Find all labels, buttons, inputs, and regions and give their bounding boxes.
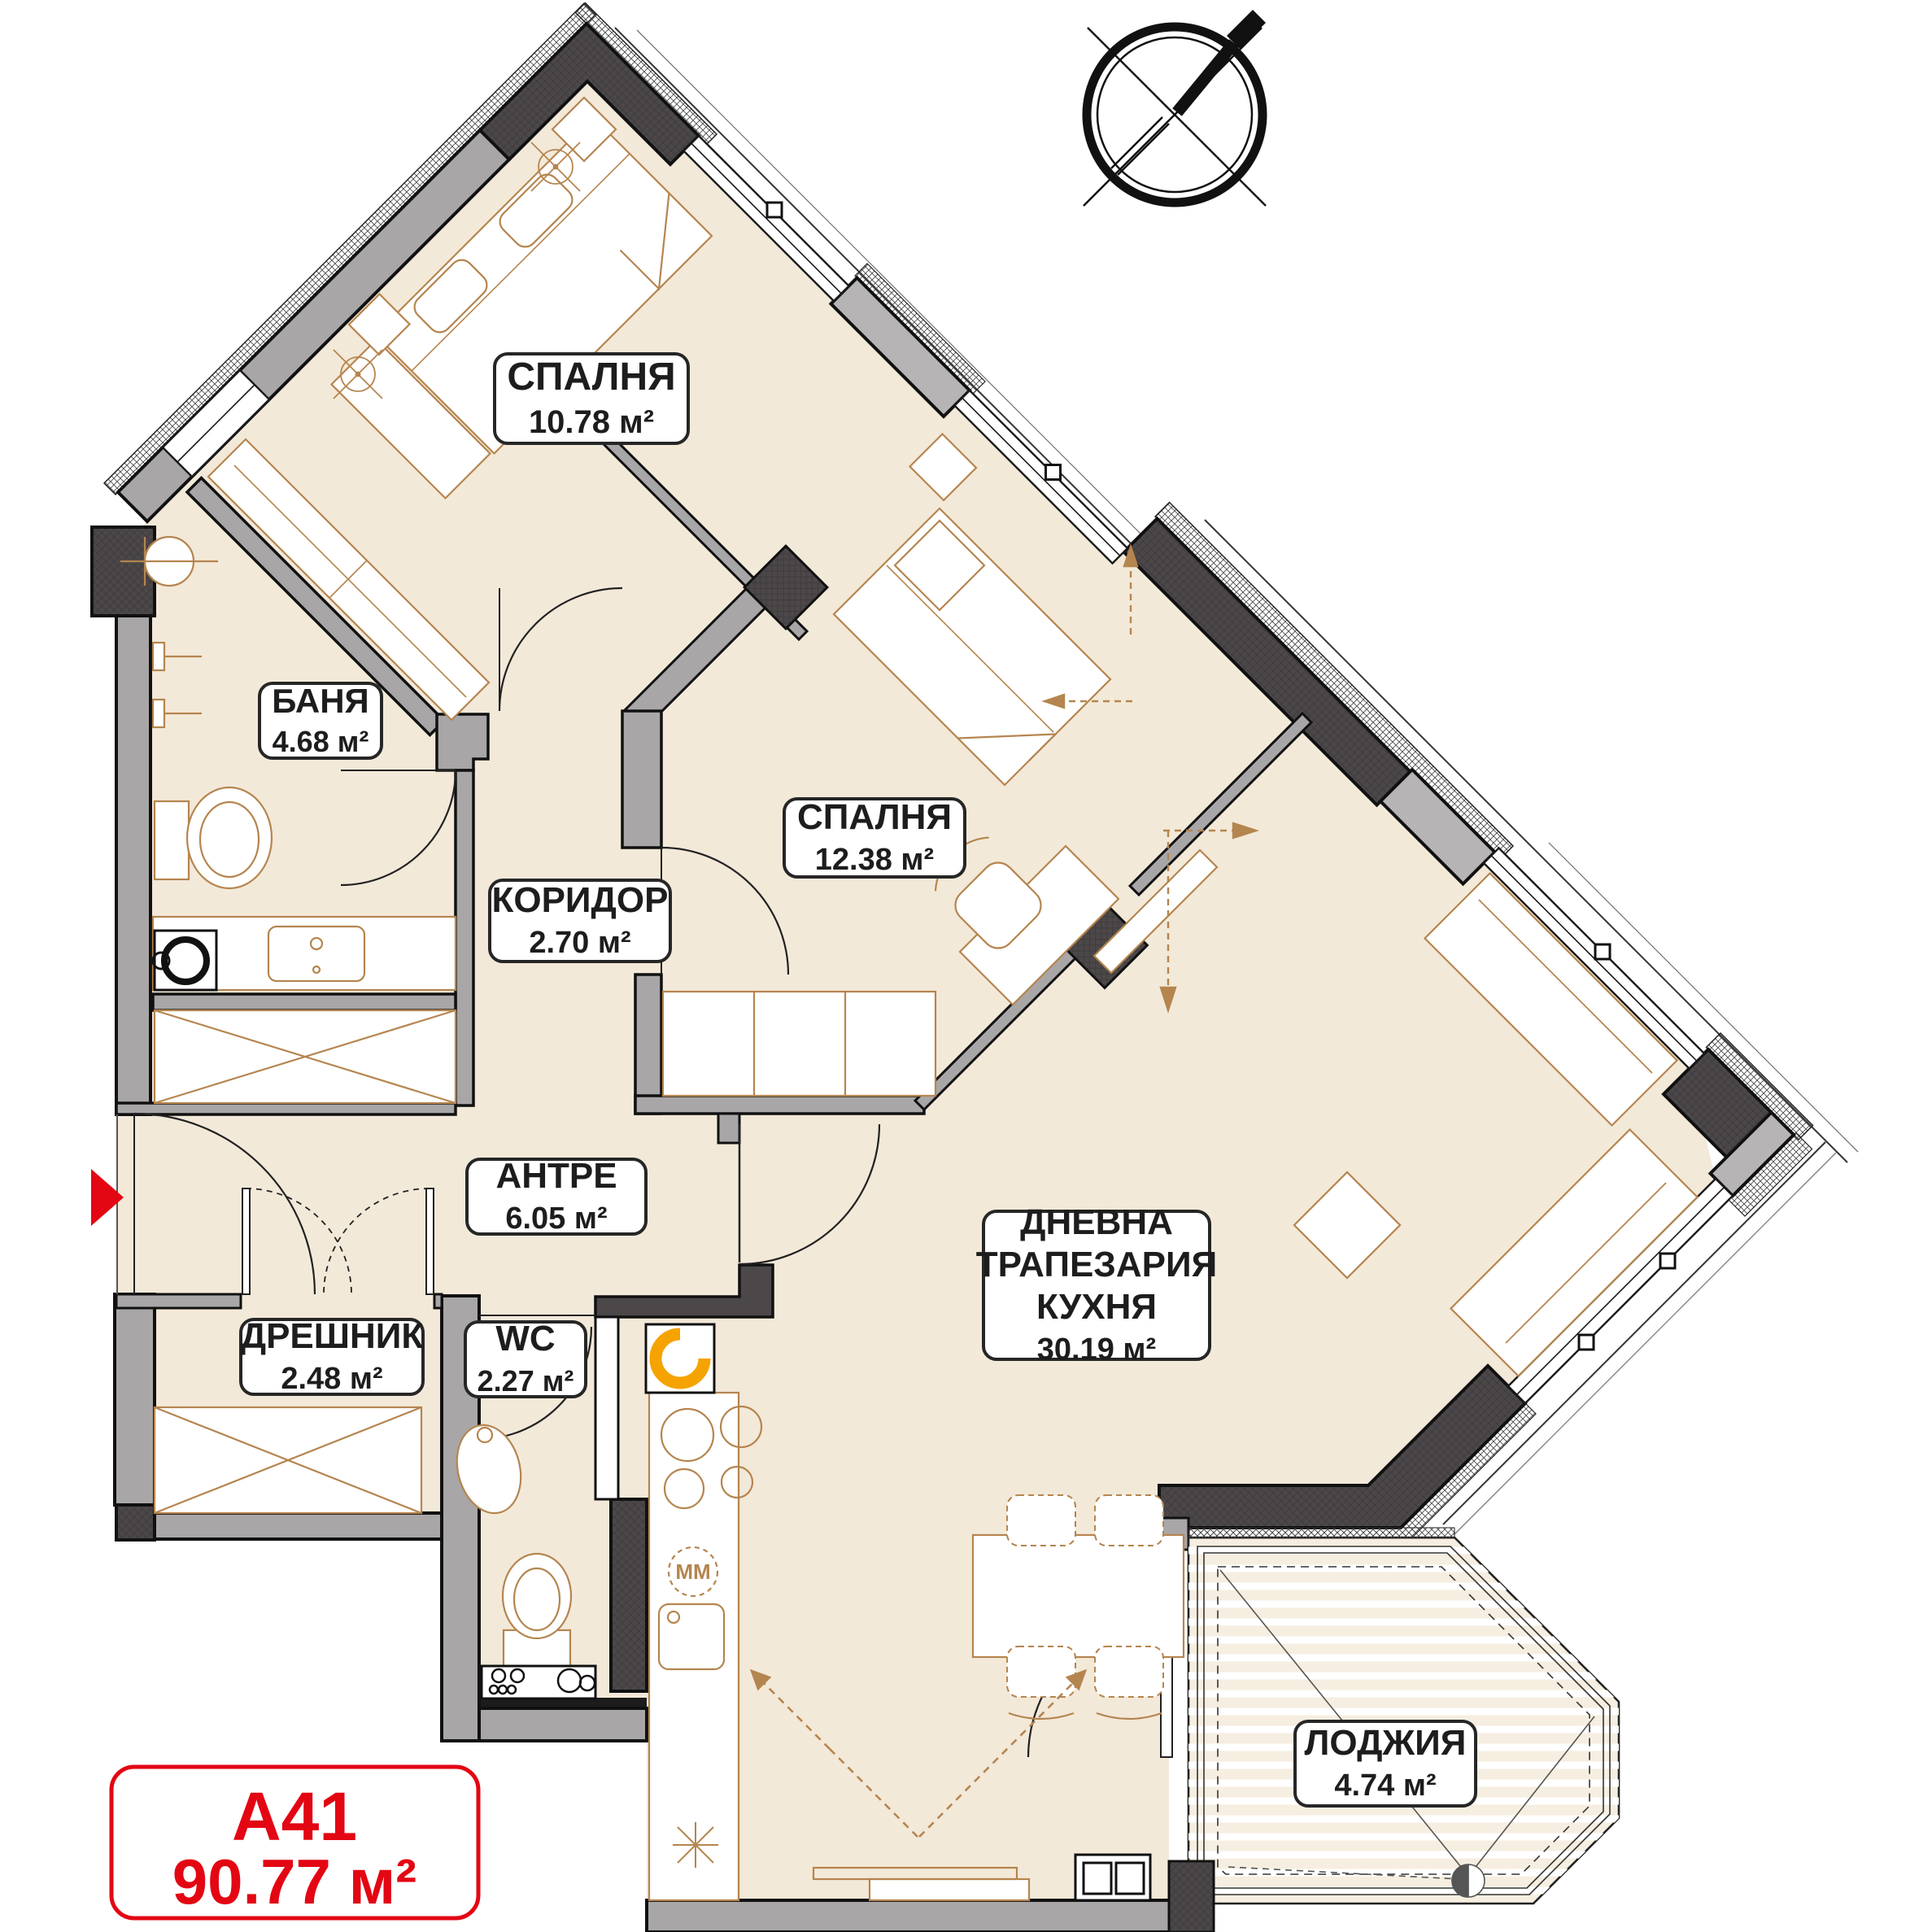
svg-text:ДРЕШНИК: ДРЕШНИК bbox=[241, 1316, 424, 1356]
svg-text:2.48 м²: 2.48 м² bbox=[281, 1362, 382, 1396]
svg-text:А41: А41 bbox=[232, 1778, 357, 1855]
svg-text:WC: WC bbox=[495, 1319, 555, 1359]
svg-text:4.68 м²: 4.68 м² bbox=[273, 725, 369, 758]
svg-text:СПАЛНЯ: СПАЛНЯ bbox=[507, 355, 675, 399]
svg-text:ЛОДЖИЯ: ЛОДЖИЯ bbox=[1305, 1723, 1467, 1763]
svg-text:MM: MM bbox=[675, 1559, 710, 1584]
svg-text:СПАЛНЯ: СПАЛНЯ bbox=[797, 797, 952, 837]
svg-text:10.78 м²: 10.78 м² bbox=[529, 404, 654, 440]
svg-text:90.77 м²: 90.77 м² bbox=[172, 1846, 417, 1917]
svg-text:КУХНЯ: КУХНЯ bbox=[1036, 1287, 1157, 1327]
svg-text:12.38 м²: 12.38 м² bbox=[815, 843, 934, 877]
svg-text:6.05 м²: 6.05 м² bbox=[505, 1202, 607, 1236]
svg-text:ДНЕВНА: ДНЕВНА bbox=[1020, 1202, 1173, 1242]
svg-text:2.70 м²: 2.70 м² bbox=[529, 926, 630, 960]
svg-text:4.74 м²: 4.74 м² bbox=[1334, 1768, 1436, 1803]
svg-text:КОРИДОР: КОРИДОР bbox=[492, 880, 669, 920]
svg-text:АНТРЕ: АНТРЕ bbox=[495, 1156, 617, 1196]
svg-text:БАНЯ: БАНЯ bbox=[272, 682, 369, 720]
svg-text:30.19 м²: 30.19 м² bbox=[1037, 1332, 1156, 1367]
svg-text:ТРАПЕЗАРИЯ: ТРАПЕЗАРИЯ bbox=[976, 1245, 1217, 1284]
svg-text:2.27 м²: 2.27 м² bbox=[478, 1364, 574, 1398]
